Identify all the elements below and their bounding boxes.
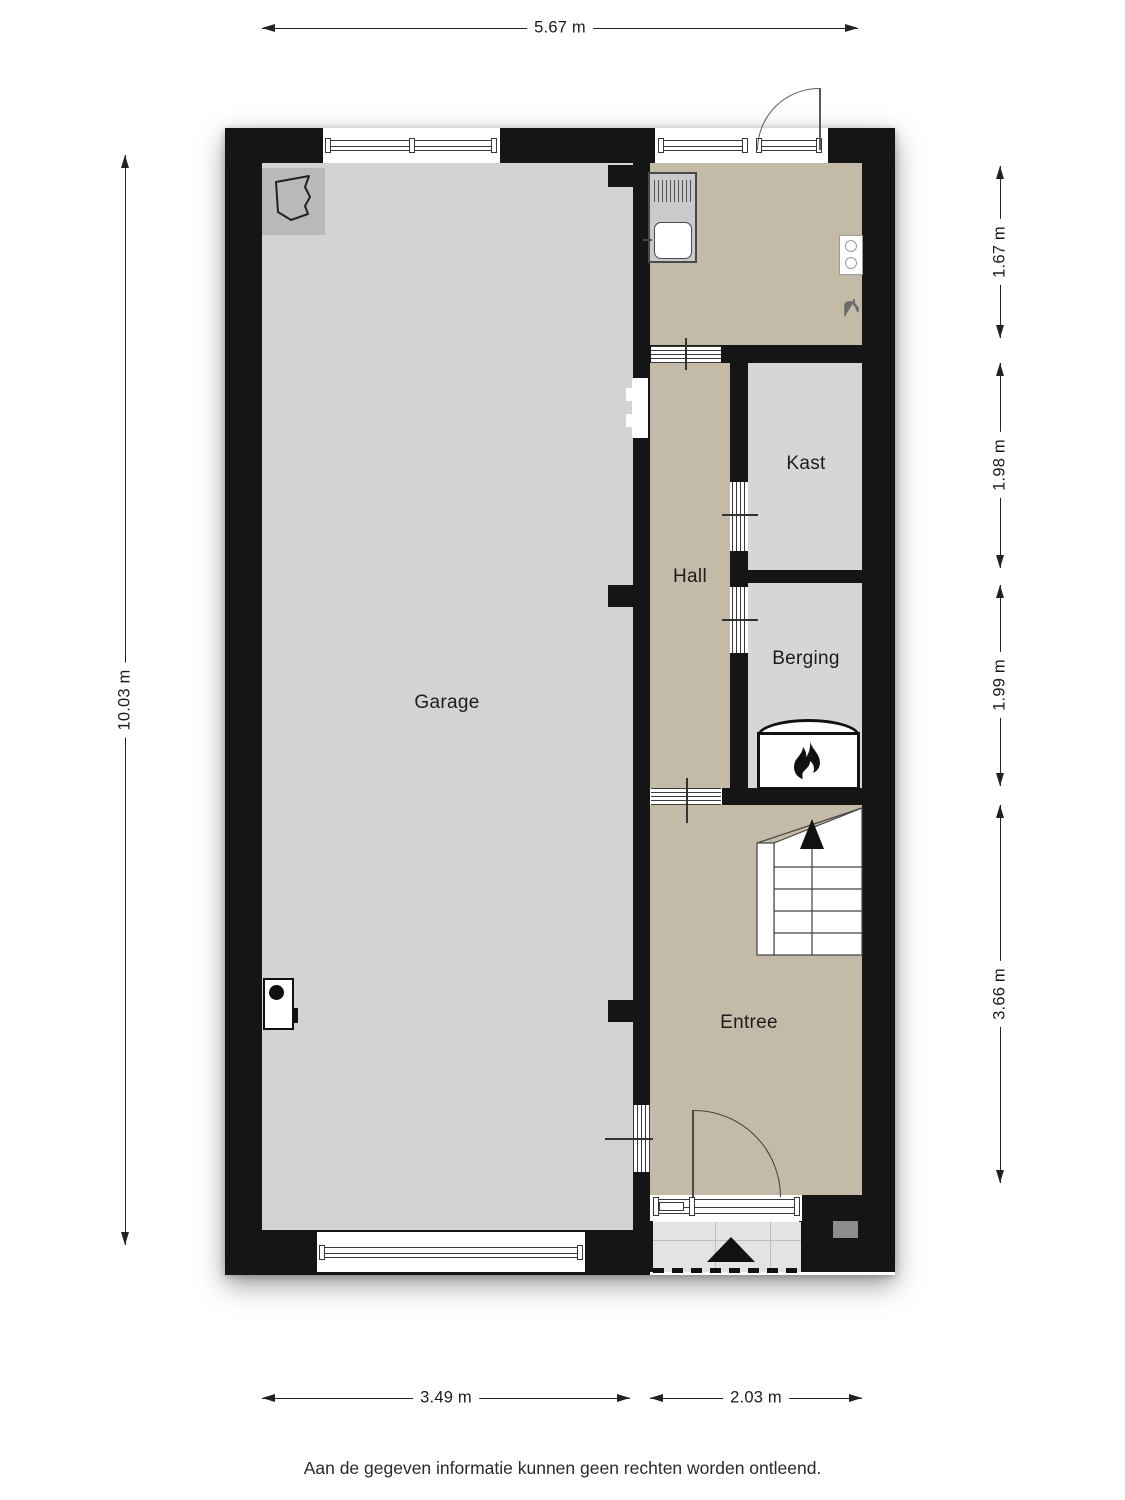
room-label-garage: Garage [414, 692, 479, 714]
wall-kast-berging [748, 570, 862, 583]
dim-label-right-1: 1.67 m [991, 219, 1010, 285]
wall-boiler-handle [293, 1008, 298, 1023]
door-hall-entree-centerline [686, 778, 688, 823]
dim-label-bottom-2: 2.03 m [723, 1389, 789, 1408]
wall-hall-entree [722, 788, 862, 805]
garage-window-icon [320, 1247, 582, 1258]
entrance-triangle-icon [707, 1237, 755, 1262]
sink-basin-icon [654, 222, 692, 259]
window-top-garage-icon [326, 140, 496, 151]
dim-label-right-3: 1.99 m [991, 652, 1010, 718]
vent-recess [833, 1221, 858, 1238]
connection-dial-2 [845, 257, 857, 269]
opening-garage-hall-tab-1 [626, 388, 633, 401]
flame-icon [791, 740, 827, 786]
connection-dial-1 [845, 240, 857, 252]
sink-faucet-icon [643, 239, 652, 241]
door-garage-entree-centerline [605, 1138, 653, 1140]
pilaster-2 [608, 585, 633, 607]
fireplace-box [757, 732, 860, 790]
opening-garage-hall [632, 378, 648, 438]
room-label-berging: Berging [772, 648, 840, 670]
door-hall-kast-centerline [722, 514, 758, 516]
drainer-grill-icon [654, 180, 692, 202]
dim-label-right-2: 1.98 m [991, 432, 1010, 498]
wall-hall-kast-c [730, 653, 748, 803]
dim-label-right-4: 3.66 m [991, 961, 1010, 1027]
wall-hall-kast-b [730, 551, 748, 587]
water-tap-icon [842, 297, 860, 317]
wall-hall-kast-a [730, 363, 748, 482]
utility-sink-box [262, 168, 325, 235]
front-door-sidelight-icon [659, 1202, 684, 1211]
dim-label-bottom-1: 3.49 m [413, 1389, 479, 1408]
door-utility-hall-centerline [685, 338, 687, 370]
pilaster-1 [608, 165, 633, 187]
stairs-icon [755, 805, 864, 957]
dim-label-top: 5.67 m [527, 19, 593, 38]
disclaimer-text: Aan de gegeven informatie kunnen geen re… [304, 1458, 822, 1479]
wall-garage-hall [633, 163, 650, 1230]
utility-sink-icon [262, 168, 325, 235]
door-top-swing-arc-icon [757, 88, 819, 150]
wall-right [862, 128, 895, 1272]
wall-boiler-dial [269, 985, 284, 1000]
room-label-kast: Kast [786, 453, 825, 475]
porch-boundary-dashed-line [653, 1268, 801, 1273]
pilaster-3 [608, 1000, 633, 1022]
room-label-entree: Entree [720, 1012, 778, 1034]
room-label-hall: Hall [673, 566, 707, 588]
floor-plan-canvas: Garage Hall Kast Berging Entree 5.67 m 1… [0, 0, 1125, 1500]
door-hall-berging-centerline [722, 619, 758, 621]
window-top-utility-icon [659, 140, 747, 151]
dim-label-left: 10.03 m [116, 662, 135, 737]
entrance-porch [653, 1222, 801, 1272]
door-hall-kast [732, 482, 748, 551]
opening-garage-hall-tab-2 [626, 414, 633, 427]
sink-counter-icon [648, 172, 697, 263]
wall-left [225, 128, 262, 1275]
door-top-leaf [819, 88, 821, 150]
